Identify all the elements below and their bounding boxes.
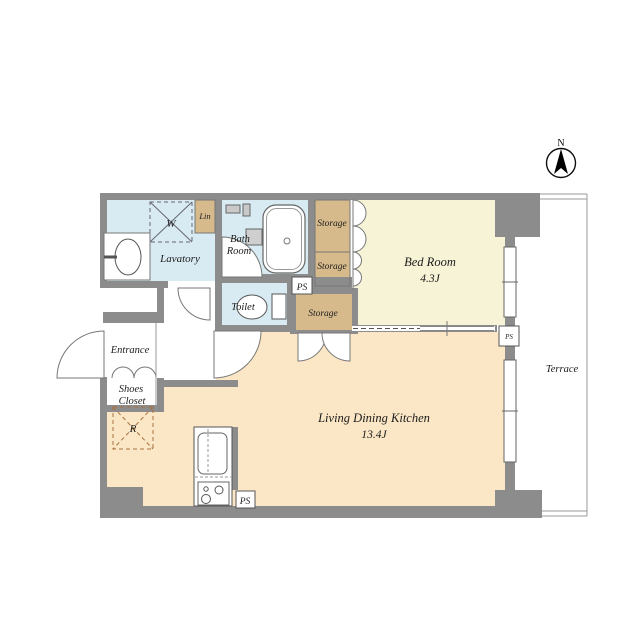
wall-corner-se bbox=[495, 490, 542, 518]
wall-left-lower bbox=[100, 377, 107, 487]
shoes-closet-door-arc-2 bbox=[134, 367, 156, 378]
bathtub bbox=[263, 205, 305, 273]
terrace-label: Terrace bbox=[546, 364, 579, 375]
wall-entrance-top bbox=[103, 312, 164, 323]
wall-hall-bottom bbox=[158, 380, 238, 387]
shower-head-icon bbox=[243, 204, 250, 216]
wall-bottom bbox=[100, 506, 540, 518]
wall-east-2 bbox=[505, 317, 515, 326]
wall-lav-bath-divider bbox=[215, 200, 222, 281]
terrace-outline bbox=[540, 194, 587, 516]
floor-plan: Entrance Shoes Closet Lavatory Bath Room… bbox=[0, 0, 640, 640]
wall-top bbox=[100, 193, 540, 200]
wall-east-1 bbox=[505, 237, 515, 247]
entrance-door-swing bbox=[57, 331, 104, 378]
wall-east-3 bbox=[505, 346, 515, 360]
wall-kitchen-right bbox=[232, 427, 238, 490]
bedroom-label: Bed Room bbox=[404, 255, 456, 269]
storage-ldk-label: Storage bbox=[308, 309, 338, 319]
shower-fixture-icon bbox=[226, 205, 240, 213]
wall-bath-right bbox=[308, 193, 315, 283]
ldk-label: Living Dining Kitchen bbox=[317, 411, 430, 425]
washing-machine-label: W bbox=[166, 218, 176, 230]
vanity-sink bbox=[115, 239, 141, 275]
lavatory-label: Lavatory bbox=[159, 253, 200, 265]
entrance-label: Entrance bbox=[110, 345, 150, 356]
toilet-label: Toilet bbox=[231, 302, 256, 313]
pipe-shaft-top-label: PS bbox=[296, 283, 308, 293]
compass-needle bbox=[554, 149, 568, 174]
pipe-shaft-kitchen-label: PS bbox=[239, 497, 251, 507]
pipe-shaft-east-label: PS bbox=[504, 333, 513, 341]
wall-east-4 bbox=[505, 462, 515, 490]
lin-label: Lin bbox=[198, 211, 210, 221]
shoes-closet-label-1: Shoes bbox=[119, 384, 144, 395]
lavatory-door-swing bbox=[178, 288, 210, 320]
shoes-closet-door-arc-1 bbox=[112, 367, 134, 378]
refrigerator-label: R bbox=[129, 423, 137, 435]
north-compass-icon bbox=[547, 149, 576, 178]
bathroom-label-2: Room bbox=[226, 246, 252, 257]
north-label: N bbox=[557, 138, 564, 149]
toilet-tank bbox=[272, 294, 286, 319]
bedroom-size-label: 4.3J bbox=[420, 273, 440, 285]
storage-lower-label: Storage bbox=[317, 262, 347, 272]
storage-bed-fill bbox=[315, 200, 350, 286]
wall-corner-ne bbox=[495, 193, 540, 237]
storage-upper-label: Storage bbox=[317, 219, 347, 229]
floor-plan-page: Entrance Shoes Closet Lavatory Bath Room… bbox=[0, 0, 640, 640]
kitchen-sink bbox=[198, 433, 227, 474]
shoes-closet-label-2: Closet bbox=[119, 396, 147, 407]
bathroom-label-1: Bath bbox=[230, 234, 250, 245]
ldk-size-label: 13.4J bbox=[361, 429, 387, 441]
